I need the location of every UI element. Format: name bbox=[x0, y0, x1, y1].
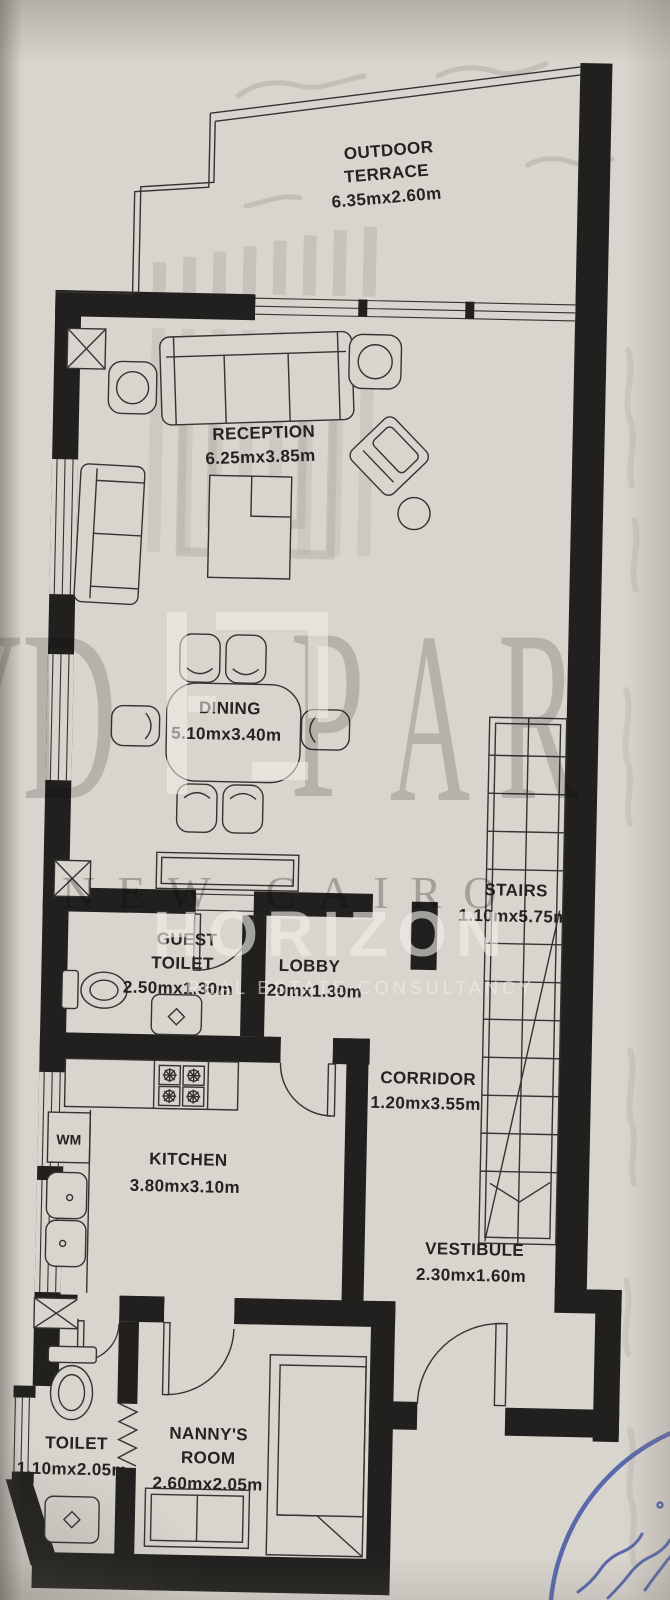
side-table bbox=[398, 497, 431, 530]
room-dims: 5.10mx3.40m bbox=[171, 724, 282, 745]
column-x bbox=[67, 328, 106, 369]
room-name: RECEPTION bbox=[212, 422, 315, 444]
bed bbox=[266, 1355, 366, 1557]
sofa-large bbox=[159, 331, 354, 425]
room-dims: 3.80mx3.10m bbox=[130, 1176, 241, 1197]
armchair-round bbox=[349, 334, 402, 389]
room-name: VESTIBULE bbox=[425, 1239, 524, 1260]
room-dims: 6.35mx2.60m bbox=[331, 184, 442, 212]
terrace-parapet bbox=[56, 56, 581, 303]
sink bbox=[151, 994, 202, 1035]
nanny-room-door bbox=[163, 1299, 235, 1396]
watermark-tagline: REAL ESTATE CONSULTANCY bbox=[186, 978, 535, 998]
coffee-table bbox=[208, 475, 292, 579]
stove bbox=[154, 1060, 209, 1109]
room-dims: 2.30mx1.60m bbox=[416, 1265, 527, 1286]
floor-plan-svg: WM bbox=[0, 0, 670, 1600]
label-nannys-room: NANNY'S ROOM 2.60mx2.05m bbox=[152, 1423, 264, 1494]
kitchen-counter bbox=[65, 1058, 239, 1110]
label-vestibule: VESTIBULE 2.30mx1.60m bbox=[416, 1239, 527, 1286]
room-name: ROOM bbox=[181, 1448, 236, 1468]
label-outdoor-terrace: OUTDOOR TERRACE 6.35mx2.60m bbox=[327, 137, 442, 212]
watermark-brand: HORIZON bbox=[153, 898, 511, 970]
watermark-letter: D bbox=[22, 580, 117, 851]
watermark-letter: Y bbox=[0, 580, 23, 851]
approval-stamp bbox=[550, 1415, 670, 1600]
room-name: TERRACE bbox=[343, 161, 429, 187]
nanny-room-furniture bbox=[144, 1352, 366, 1557]
label-toilet: TOILET 1.10mx2.05m bbox=[17, 1432, 128, 1479]
room-name: TOILET bbox=[45, 1433, 108, 1453]
room-dims: 2.60mx2.05m bbox=[152, 1473, 263, 1494]
watermark-letter: R bbox=[498, 580, 578, 851]
wardrobe bbox=[144, 1488, 249, 1548]
sink bbox=[44, 1496, 99, 1543]
room-name: NANNY'S bbox=[169, 1424, 248, 1445]
armchair-round bbox=[108, 361, 157, 414]
reception-furniture bbox=[74, 326, 435, 611]
entry-door bbox=[417, 1322, 507, 1406]
room-name: CORRIDOR bbox=[380, 1068, 476, 1089]
louver-zigzag bbox=[118, 1404, 137, 1466]
column-x bbox=[34, 1298, 79, 1329]
washing-machine: WM bbox=[47, 1112, 90, 1163]
washing-machine-label: WM bbox=[56, 1131, 81, 1148]
toilet-wc bbox=[62, 970, 128, 1009]
label-corridor: CORRIDOR 1.20mx3.55m bbox=[370, 1068, 481, 1114]
watermark-letter: A bbox=[390, 582, 470, 853]
room-dims: 1.20mx3.55m bbox=[370, 1093, 481, 1114]
room-dims: 6.25mx3.85m bbox=[205, 446, 316, 468]
kitchen-door bbox=[279, 1039, 336, 1116]
terrace-sliding-window bbox=[255, 294, 575, 327]
room-name: OUTDOOR bbox=[343, 137, 434, 163]
toilet-wc bbox=[47, 1346, 97, 1420]
label-kitchen: KITCHEN 3.80mx3.10m bbox=[130, 1149, 241, 1197]
floor-plan-scan: WM bbox=[0, 0, 670, 1600]
room-name: KITCHEN bbox=[149, 1149, 228, 1170]
room-dims: 1.10mx2.05m bbox=[17, 1458, 128, 1479]
